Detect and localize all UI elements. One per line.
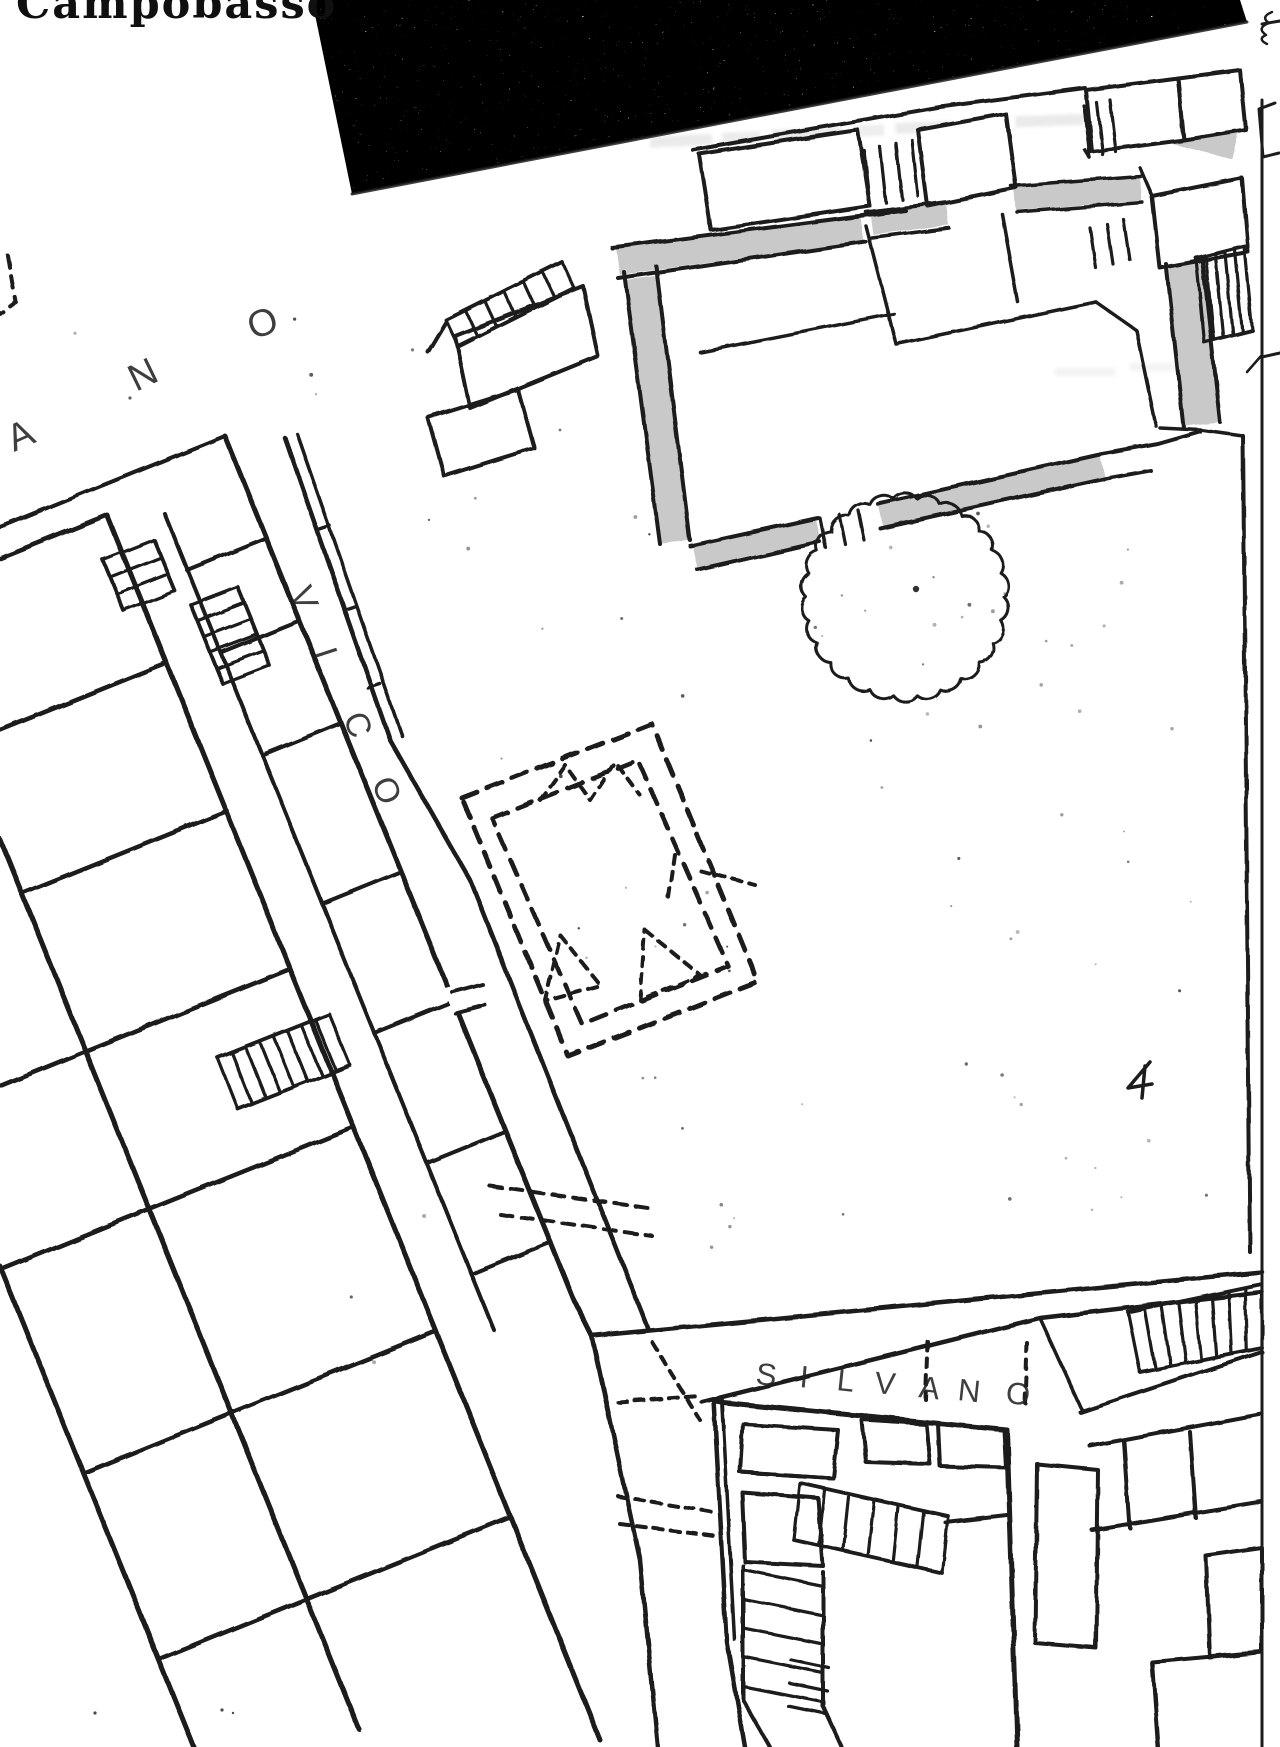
- street-letter: A: [917, 1369, 943, 1406]
- street-letter: S: [754, 1356, 779, 1393]
- street-letter: O: [1004, 1375, 1033, 1412]
- page-title: Campobasso: [16, 0, 337, 29]
- street-letter: V: [873, 1365, 898, 1402]
- map-canvas: A N O V I C O S I L V A N O Campobasso: [0, 0, 1280, 1747]
- street-letter: N: [956, 1372, 983, 1409]
- scanned-site-plan: A N O V I C O S I L V A N O Campobasso: [0, 0, 1280, 1747]
- street-letter: L: [835, 1362, 857, 1399]
